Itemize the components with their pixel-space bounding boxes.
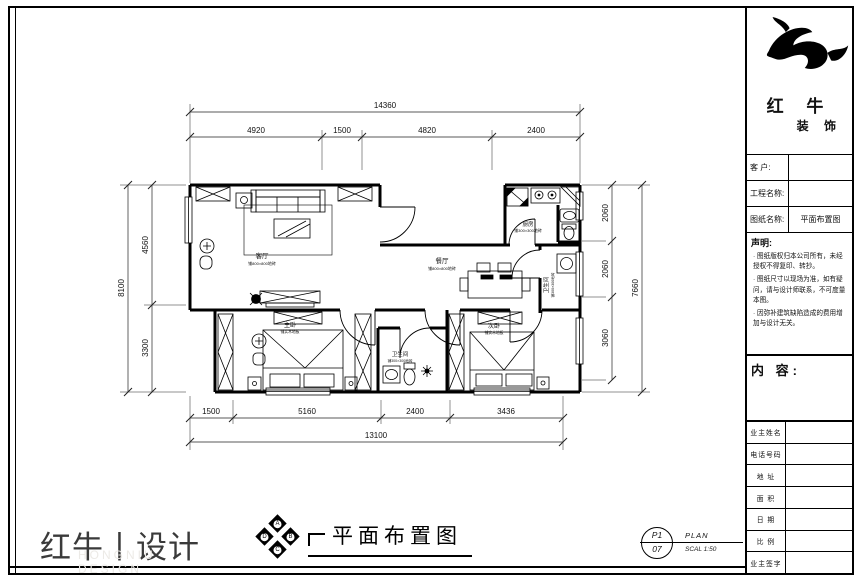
dimension-lines [120, 104, 650, 450]
dim-top-seg: 4920 [247, 126, 265, 135]
living-room-furniture [196, 187, 372, 307]
statement-heading: 声明: [751, 236, 848, 249]
statement-section: 声明: 图纸版权归本公司所有，未经授权不得复印、转抄。 图纸尺寸以现场为准，如有… [747, 233, 852, 356]
dim-right-seg: 2060 [601, 204, 610, 222]
sheet-number-stamp: P1 07 PLAN SCAL 1:50 [641, 527, 751, 567]
row-label: 业主姓名 [747, 422, 786, 443]
room-dining: 餐厅 [436, 256, 450, 265]
row-value [786, 552, 852, 573]
row-label: 日 期 [747, 509, 786, 530]
row-value [786, 487, 852, 508]
compass-diamond-w: D [255, 527, 273, 545]
bull-logo-icon [748, 12, 852, 90]
row-label: 面 积 [747, 487, 786, 508]
dim-bottom-seg: 2400 [406, 407, 424, 416]
stamp-label: PLAN [685, 531, 709, 540]
statement-item: 图纸尺寸以现场为准，如有疑问，请与设计师联系，不可度量本图。 [753, 275, 848, 306]
room-bath-right: 卫生间 [542, 277, 550, 294]
field-project: 工程名称: [747, 181, 852, 207]
compass-icon: A B C D [256, 516, 300, 560]
exterior-walls [190, 185, 580, 392]
bath-mid-fixtures [383, 363, 433, 385]
title-block: 红 牛 装 饰 客 户: 工程名称: 图纸名称: 平面布置图 声明: 图纸版权归… [745, 8, 852, 573]
field-client: 客 户: [747, 155, 852, 181]
compass-diamond-n: A [268, 514, 286, 532]
field-project-label: 工程名称: [747, 181, 789, 206]
brand-suffix: 装 饰 [747, 117, 852, 134]
room-second: 次卧 [488, 322, 500, 330]
room-bath-mid: 卫生间 [392, 350, 409, 358]
dim-right-total: 7660 [631, 279, 640, 297]
row-label: 比 例 [747, 531, 786, 552]
dim-top-seg: 2400 [527, 126, 545, 135]
footer-brand-logo: 红牛丨设计 HONGNIU DESIGN [40, 522, 200, 567]
dim-top-total: 14360 [374, 101, 397, 110]
row-label: 业主签字 [747, 552, 786, 573]
footer-brand-subtext: HONGNIU DESIGN [78, 548, 200, 576]
row-value [786, 531, 852, 552]
statement-item: 因弥补建筑缺陷造成的费用增加与设计无关。 [753, 309, 848, 329]
dim-right-seg: 2060 [601, 260, 610, 278]
dim-left-seg: 4560 [141, 236, 150, 254]
dim-bottom-seg: 3436 [497, 407, 515, 416]
table-row: 日 期 [747, 509, 852, 531]
sheet-number-bottom: 07 [642, 542, 672, 556]
dim-top-seg: 4820 [418, 126, 436, 135]
table-row: 地 址 [747, 465, 852, 487]
dim-top-seg: 1500 [333, 126, 351, 135]
table-row: 业主姓名 [747, 422, 852, 444]
row-value [786, 422, 852, 443]
room-kitchen-note: 铺300×300地砖 [514, 227, 542, 233]
table-row: 业主签字 [747, 552, 852, 573]
field-drawing-label: 图纸名称: [747, 207, 789, 232]
door-arcs [340, 207, 542, 358]
field-client-label: 客 户: [747, 155, 789, 180]
room-living: 客厅 [256, 251, 270, 260]
content-section: 内 容: [747, 356, 852, 422]
row-value [786, 465, 852, 486]
row-value [786, 509, 852, 530]
table-row: 电话号码 [747, 444, 852, 466]
compass-diamond-s: C [268, 540, 286, 558]
room-master: 主卧 [284, 321, 296, 329]
sheet-number-divider [640, 542, 674, 543]
statement-list: 图纸版权归本公司所有，未经授权不得复印、转抄。 图纸尺寸以现场为准，如有疑问，请… [751, 252, 848, 330]
row-label: 电话号码 [747, 444, 786, 465]
table-row: 比 例 [747, 531, 852, 553]
dim-left-total: 8100 [117, 279, 126, 297]
drawing-title-text: 平面布置图 [332, 525, 462, 548]
sheet-number-circle: P1 07 [641, 527, 673, 559]
room-bath-right-note: 铺300×300地砖 [550, 272, 555, 297]
dim-bottom-seg: 5160 [298, 407, 316, 416]
dim-left-seg: 3300 [141, 339, 150, 357]
stamp-rule [671, 542, 743, 543]
signature-table: 业主姓名 电话号码 地 址 面 积 日 期 比 例 业主签字 [747, 422, 852, 573]
floor-plan: 14360 4920 1500 4820 2400 8100 4560 3300… [0, 0, 745, 580]
row-label: 地 址 [747, 465, 786, 486]
dim-bottom-seg: 1500 [202, 407, 220, 416]
interior-walls [190, 205, 580, 392]
statement-item: 图纸版权归本公司所有，未经授权不得复印、转抄。 [753, 252, 848, 272]
title-bracket-icon [308, 533, 325, 546]
room-kitchen: 厨房 [522, 220, 534, 228]
room-master-note: 铺实木地板 [281, 329, 300, 334]
content-heading: 内 容: [751, 360, 848, 379]
drawing-title: 平面布置图 [308, 520, 472, 557]
field-drawing-value: 平面布置图 [789, 214, 852, 225]
bath-right-fixtures [557, 254, 576, 273]
compass-diamond-e: B [281, 527, 299, 545]
room-living-note: 铺800×800地砖 [248, 260, 276, 266]
room-dining-note: 铺800×800地砖 [428, 265, 456, 271]
brand-logo-cell: 红 牛 装 饰 [747, 8, 852, 155]
row-value [786, 444, 852, 465]
dining-furniture [460, 263, 530, 298]
table-row: 面 积 [747, 487, 852, 509]
drawing-sheet: 14360 4920 1500 4820 2400 8100 4560 3300… [0, 0, 860, 580]
dim-right-seg: 3060 [601, 329, 610, 347]
sheet-number-top: P1 [642, 528, 672, 542]
field-drawing: 图纸名称: 平面布置图 [747, 207, 852, 233]
brand-name: 红 牛 [747, 92, 852, 117]
room-second-note: 铺实木地板 [485, 330, 504, 335]
dim-bottom-total: 13100 [365, 431, 388, 440]
room-bath-mid-note: 铺300×300地砖 [388, 358, 413, 363]
stamp-scale: SCAL 1:50 [685, 546, 716, 553]
